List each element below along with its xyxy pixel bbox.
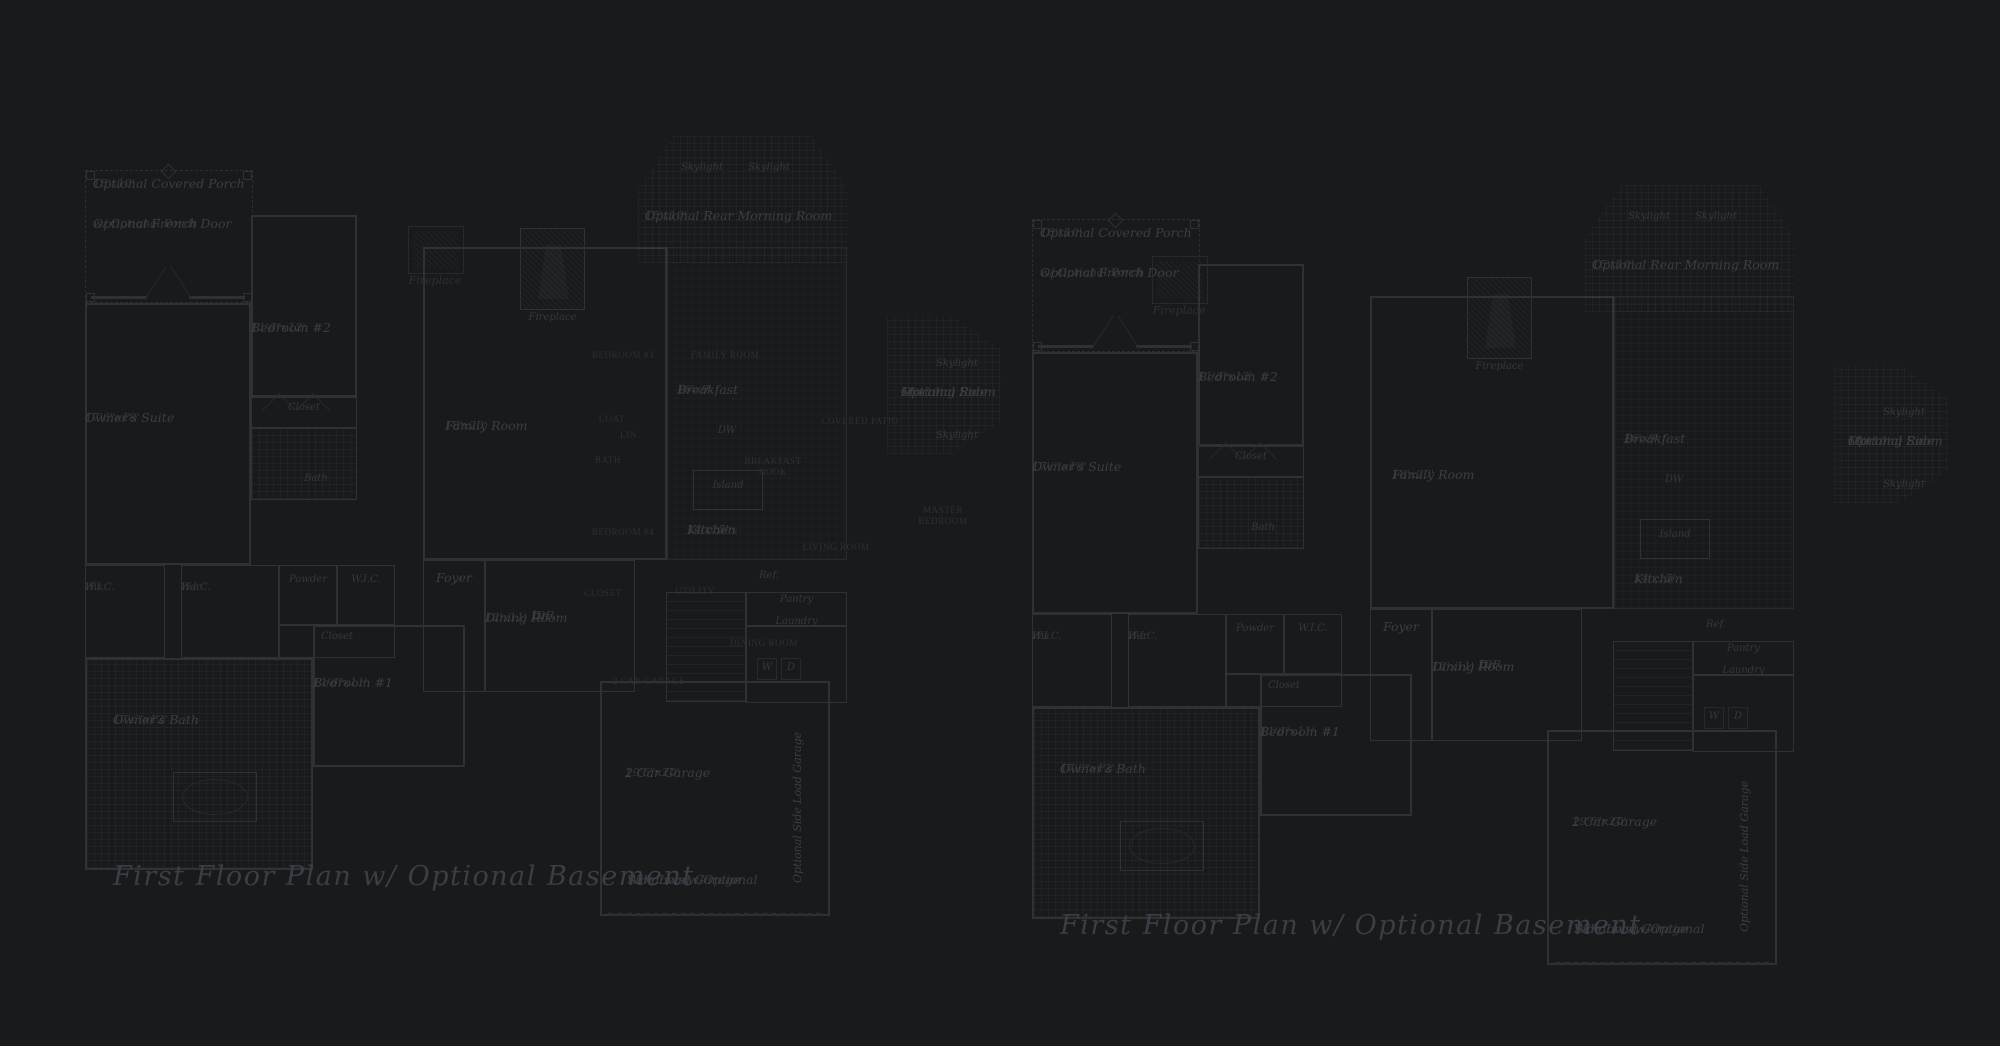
dishwasher-label: DW <box>1654 474 1694 486</box>
optional-rear-morning-room <box>1585 185 1795 312</box>
bedroom2-bath-label: Bath <box>1222 522 1304 534</box>
rear-skylight-right-label: Skylight <box>1684 211 1748 223</box>
bedroom2-bath-label: Bath <box>275 473 357 485</box>
powder-label: Powder <box>279 574 337 586</box>
rear-skylight-left-label: Skylight <box>1617 211 1681 223</box>
pantry-label: Pantry <box>1693 643 1794 655</box>
wic-label: W.I.C. <box>337 574 395 586</box>
room-her-wic <box>181 565 279 658</box>
rear-skylight-left-label: Skylight <box>670 162 734 174</box>
island-label: Island <box>693 480 763 492</box>
room-family <box>423 247 667 560</box>
dryer-label: D <box>1728 711 1748 723</box>
floor-plan-right: Optional Covered Porch 18'x10' Optional … <box>1032 219 1952 969</box>
room-bedroom1 <box>313 625 465 767</box>
powder-label: Powder <box>1226 623 1284 635</box>
foyer-label: Foyer <box>1370 619 1432 634</box>
room-bedroom2-bath <box>1198 477 1304 549</box>
bathtub <box>1120 821 1204 871</box>
washer-label: W <box>757 662 777 674</box>
floor-plan-collage: { "canvas": {"width": 2000, "height": 10… <box>0 0 2000 1046</box>
room-bedroom2-bath <box>251 428 357 500</box>
garage-dims: 19'6"x20' <box>625 765 680 780</box>
porch-dims: 18'x10' <box>93 176 135 191</box>
his-wic-line2: W.I.C. <box>85 582 114 594</box>
floor-plan-left: Optional Covered Porch 18'x10' Optional … <box>85 170 1005 920</box>
kitchen-breakfast-wing <box>1614 296 1794 609</box>
owner-suite-dims: 17'6"x18' <box>1032 459 1087 474</box>
bathtub-basin <box>182 779 248 815</box>
room-owner-bath <box>1032 707 1260 919</box>
optional-rear-morning-room <box>638 136 848 263</box>
breakfast-dims: 16'x9' <box>677 382 712 397</box>
room-bedroom2 <box>251 215 357 397</box>
dining-dims: 12'x11' <box>1432 659 1474 674</box>
owner-suite-dims: 17'6"x18' <box>85 410 140 425</box>
side-skylight-top-label: Skylight <box>913 358 1001 370</box>
rear-morning-room-dims: 15'x10' <box>645 208 687 223</box>
her-wic-line2: W.I.C. <box>1128 631 1157 643</box>
room-her-wic <box>1128 614 1226 707</box>
foyer-label: Foyer <box>423 570 485 585</box>
washer-label: W <box>1704 711 1724 723</box>
bedroom1-dims: 11'6"x11' <box>313 675 368 690</box>
side-load-garage-note: Optional Side Load Garage <box>1738 771 1766 941</box>
side-morning-dims: 15'x10' <box>1848 434 1890 448</box>
family-room-dims: 18'x20' <box>445 418 487 433</box>
french-door-jamb <box>189 296 245 299</box>
garage-door <box>1555 962 1769 965</box>
room-his-wic <box>85 565 165 658</box>
laundry-label: Laundry <box>746 616 847 628</box>
breakfast-dims: 16'x9' <box>1624 431 1659 446</box>
wic-label: W.I.C. <box>1284 623 1342 635</box>
plan-caption: First Floor Plan w/ Optional Basement <box>113 860 573 894</box>
side-skylight-top-label: Skylight <box>1860 407 1948 419</box>
family-room-dims: 18'x20' <box>1392 467 1434 482</box>
rear-morning-room-dims: 15'x10' <box>1592 257 1634 272</box>
bedroom2-dims: 11'6"x12' <box>251 320 306 335</box>
her-wic-line2: W.I.C. <box>181 582 210 594</box>
bedroom2-closet-label: Closet <box>1198 451 1304 463</box>
owner-bath-dims: 17'6"x12' <box>1060 761 1115 776</box>
island-label: Island <box>1640 529 1710 541</box>
side-load-garage-note: Optional Side Load Garage <box>791 722 819 892</box>
bathtub-basin <box>1129 828 1195 864</box>
side-morning-dims: 15'x10' <box>901 385 943 399</box>
french-door-jamb <box>1038 345 1094 348</box>
room-family <box>1370 296 1614 609</box>
french-door-jamb <box>1136 345 1192 348</box>
rear-skylight-right-label: Skylight <box>737 162 801 174</box>
bathtub <box>173 772 257 822</box>
dishwasher-label: DW <box>707 425 747 437</box>
room-bedroom1 <box>1260 674 1412 816</box>
bedroom2-closet-label: Closet <box>251 402 357 414</box>
room-owner-suite <box>85 303 251 565</box>
his-wic-line2: W.I.C. <box>1032 631 1061 643</box>
french-door-line2: w/ Optional Porch <box>93 216 198 231</box>
bedroom2-dims: 11'6"x12' <box>1198 369 1253 384</box>
owner-bath-dims: 17'6"x12' <box>113 712 168 727</box>
room-dining <box>485 560 635 692</box>
dryer-label: D <box>781 662 801 674</box>
side-skylight-bottom-label: Skylight <box>913 430 1001 442</box>
dining-dims: 12'x11' <box>485 610 527 625</box>
porch-dims: 18'x10' <box>1040 225 1082 240</box>
refrigerator-label: Ref. <box>1694 619 1738 631</box>
french-door-jamb <box>91 296 147 299</box>
garage-dims: 19'6"x20' <box>1572 814 1627 829</box>
bedroom1-dims: 11'6"x11' <box>1260 724 1315 739</box>
french-door-line2: w/ Optional Porch <box>1040 265 1145 280</box>
room-owner-suite <box>1032 352 1198 614</box>
plan-caption: First Floor Plan w/ Optional Basement <box>1060 909 1520 943</box>
pantry-label: Pantry <box>746 594 847 606</box>
garage-door <box>608 913 822 916</box>
room-owner-bath <box>85 658 313 870</box>
side-skylight-bottom-label: Skylight <box>1860 479 1948 491</box>
kitchen-dims: 14'x15' <box>1634 571 1676 586</box>
room-his-wic <box>1032 614 1112 707</box>
refrigerator-label: Ref. <box>747 570 791 582</box>
kitchen-dims: 14'x15' <box>687 522 729 537</box>
laundry-label: Laundry <box>1693 665 1794 677</box>
room-bedroom2 <box>1198 264 1304 446</box>
kitchen-breakfast-wing <box>667 247 847 560</box>
room-dining <box>1432 609 1582 741</box>
